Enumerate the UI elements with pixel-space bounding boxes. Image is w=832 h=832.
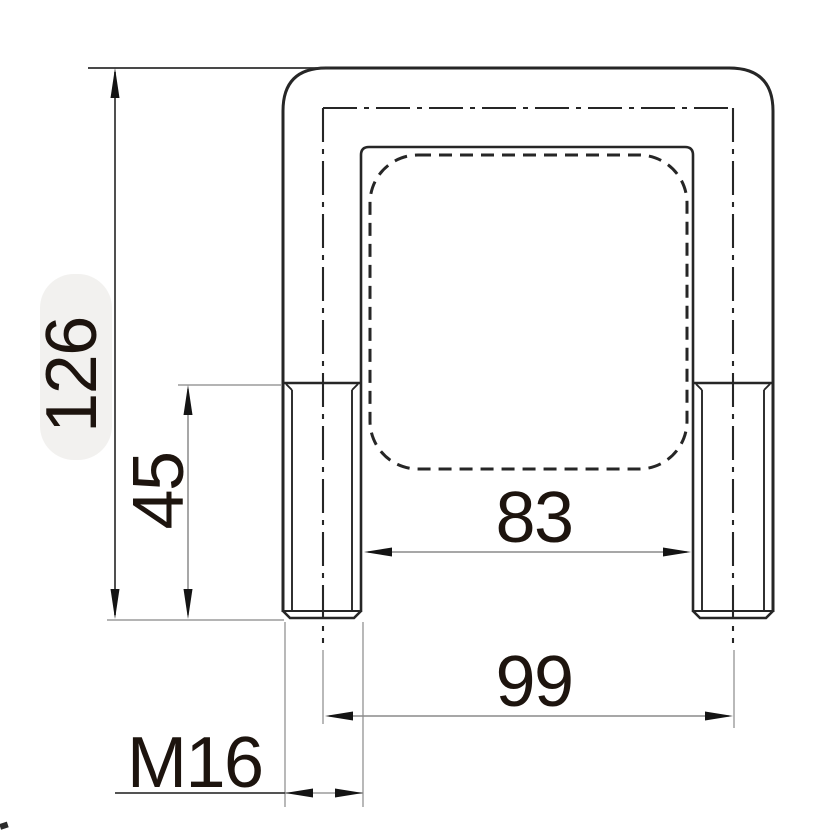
dim-label-thread-length: 45 [119, 452, 199, 529]
thread-chamfer [764, 384, 770, 390]
dimension-99: 99 [323, 642, 734, 728]
dim-label-inner-width: 83 [495, 478, 572, 558]
arrowhead-left [325, 712, 353, 721]
dimension-126: 126 [32, 68, 330, 620]
dimension-45: 45 [119, 385, 281, 619]
dim-label-overall-height: 126 [32, 317, 112, 433]
thread-chamfer [286, 384, 292, 390]
arrowhead-right [663, 548, 691, 557]
arrowhead-up [184, 385, 193, 415]
artifact-speck [0, 822, 9, 830]
dim-label-thread-designation: M16 [127, 723, 263, 803]
arrowhead-left [364, 548, 392, 557]
technical-drawing-canvas: 126 45 83 99 [0, 0, 832, 832]
clamped-tube-profile [370, 155, 687, 469]
scan-artifact [0, 822, 9, 830]
thread-chamfer [696, 384, 702, 390]
u-bolt-centerline [323, 108, 733, 643]
dimension-m16: M16 [115, 622, 363, 807]
arrowhead-left [285, 789, 313, 798]
dim-label-leg-center-spacing: 99 [495, 642, 572, 722]
arrowhead-right [705, 712, 733, 721]
dimension-83: 83 [364, 478, 691, 558]
thread-chamfer [352, 384, 358, 390]
arrowhead-up [111, 68, 120, 98]
arrowhead-right [335, 789, 363, 798]
u-bolt-dimension-drawing: 126 45 83 99 [0, 0, 832, 832]
arrowhead-down [184, 589, 193, 619]
arrowhead-down [111, 589, 120, 619]
tube-dashed-outline [370, 155, 687, 469]
